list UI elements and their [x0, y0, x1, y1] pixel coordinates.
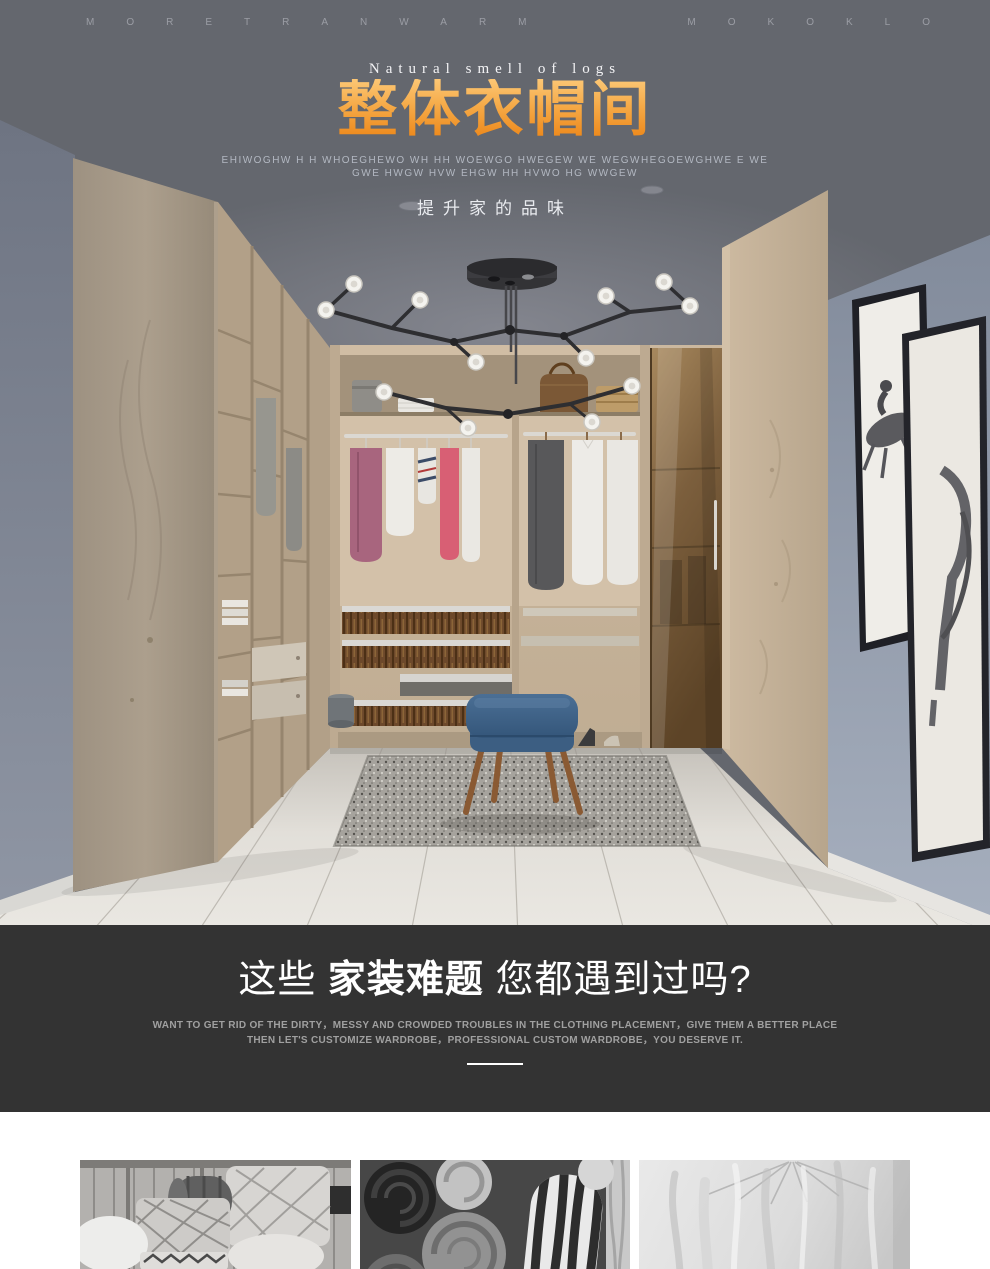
gallery-photo-rolled-clothes	[360, 1160, 631, 1269]
top-letters-left: MORETRANWARM	[86, 17, 559, 28]
problem-heading-bold: 家装难题	[328, 959, 484, 1001]
problem-description: WANT TO GET RID OF THE DIRTY，MESSY AND C…	[0, 1018, 990, 1048]
hero-subtitle: EHIWOGHW H H WHOEGHEWO WH HH WOEWGO HWEG…	[0, 154, 990, 180]
gallery-row	[80, 1112, 910, 1269]
wrinkled-fabric-graphic	[639, 1160, 910, 1269]
gallery-photo-messy-bed	[80, 1160, 351, 1269]
page-title: 整体衣帽间	[0, 79, 990, 141]
top-letters-row: MORETRANWARM MOKOKLO	[0, 0, 990, 28]
left-wall	[0, 120, 75, 918]
hero-text-block: MORETRANWARM MOKOKLO Natural smell of lo…	[0, 0, 990, 219]
problem-heading: 这些 家装难题 您都遇到过吗?	[0, 955, 990, 1005]
problem-description-line1: WANT TO GET RID OF THE DIRTY，MESSY AND C…	[0, 1018, 990, 1033]
rolled-clothes-graphic	[360, 1160, 631, 1269]
gallery-section	[0, 1112, 990, 1269]
hanging-clothes-right	[528, 432, 638, 590]
problem-heading-light-left: 这些	[238, 959, 328, 1001]
gallery-photo-wrinkled-fabric	[639, 1160, 910, 1269]
hero-eyebrow: Natural smell of logs	[0, 61, 990, 78]
hero-subtitle-line1: EHIWOGHW H H WHOEGHEWO WH HH WOEWGO HWEG…	[0, 154, 990, 167]
section-divider	[467, 1063, 523, 1065]
hero-section: MORETRANWARM MOKOKLO Natural smell of lo…	[0, 0, 990, 925]
top-letters-right: MOKOKLO	[687, 17, 962, 28]
problem-heading-light-right: 您都遇到过吗?	[484, 959, 752, 1001]
problem-section: 这些 家装难题 您都遇到过吗? WANT TO GET RID OF THE D…	[0, 925, 990, 1112]
glass-door	[650, 348, 722, 748]
messy-bed-graphic	[80, 1160, 351, 1269]
hero-subtitle-line2: GWE HWGW HVW EHGW HH HVWO HG WWGEW	[0, 167, 990, 180]
problem-description-line2: THEN LET'S CUSTOMIZE WARDROBE，PROFESSION…	[0, 1033, 990, 1048]
hero-tagline: 提升家的品味	[0, 194, 990, 219]
